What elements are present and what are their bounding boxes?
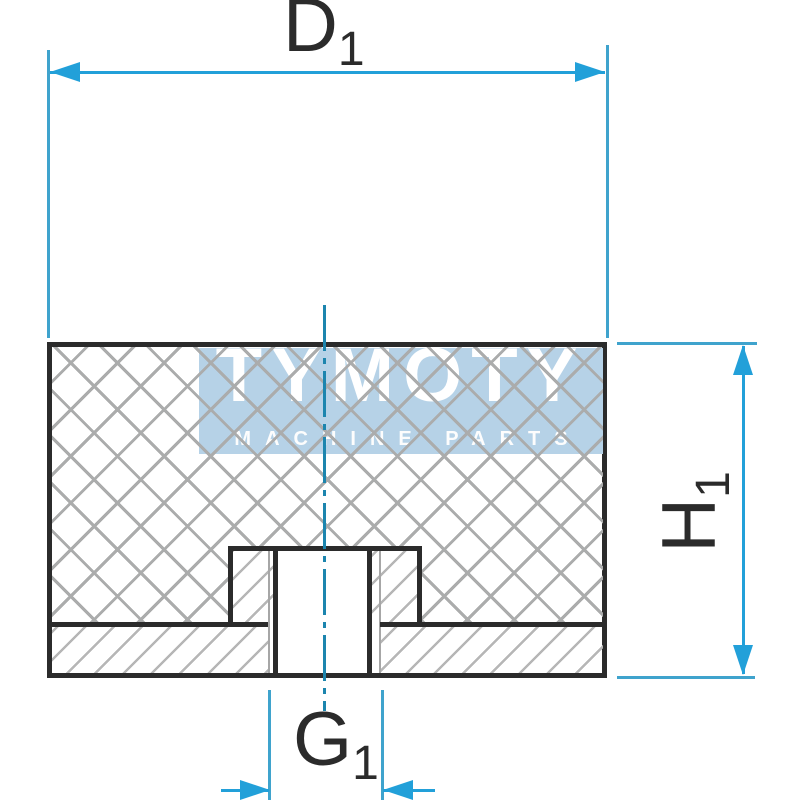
h1-arrowhead-up-icon [733,345,753,375]
plate-line-right [380,622,603,627]
hole-wall-right [367,546,372,673]
insert-outer-wall-right [417,546,422,627]
d1-arrowhead-left-icon [50,62,80,82]
g1-dimension-label: G1 [293,702,379,800]
h1-extension-line-bottom [617,676,755,679]
g1-arrowhead-inward-right-icon [383,780,413,800]
insert-wall-hatch-left [233,550,273,622]
thread-crest-line-left [268,551,270,673]
d1-letter: D [283,0,338,68]
d1-arrowhead-right-icon [575,62,605,82]
d1-subscript: 1 [338,23,365,76]
d1-extension-line-left [47,50,50,338]
thread-crest-line-right [379,551,381,673]
h1-subscript: 1 [687,471,740,498]
centerline [323,305,326,711]
d1-dimension-label: D1 [283,0,365,88]
technical-drawing-canvas: D1 TYMOTY MACHINE PARTS H1 G1 [0,0,800,800]
h1-dimension-line [742,346,745,674]
d1-extension-line-right [606,45,609,338]
plate-line-left [52,622,268,627]
h1-letter: H [647,498,732,553]
hole-wall-left [273,546,278,673]
h1-dimension-label: H1 [646,450,734,574]
h1-arrowhead-down-icon [733,645,753,675]
g1-arrowhead-inward-left-icon [240,780,270,800]
g1-subscript: 1 [352,737,379,790]
insert-outer-wall-left [228,546,233,627]
